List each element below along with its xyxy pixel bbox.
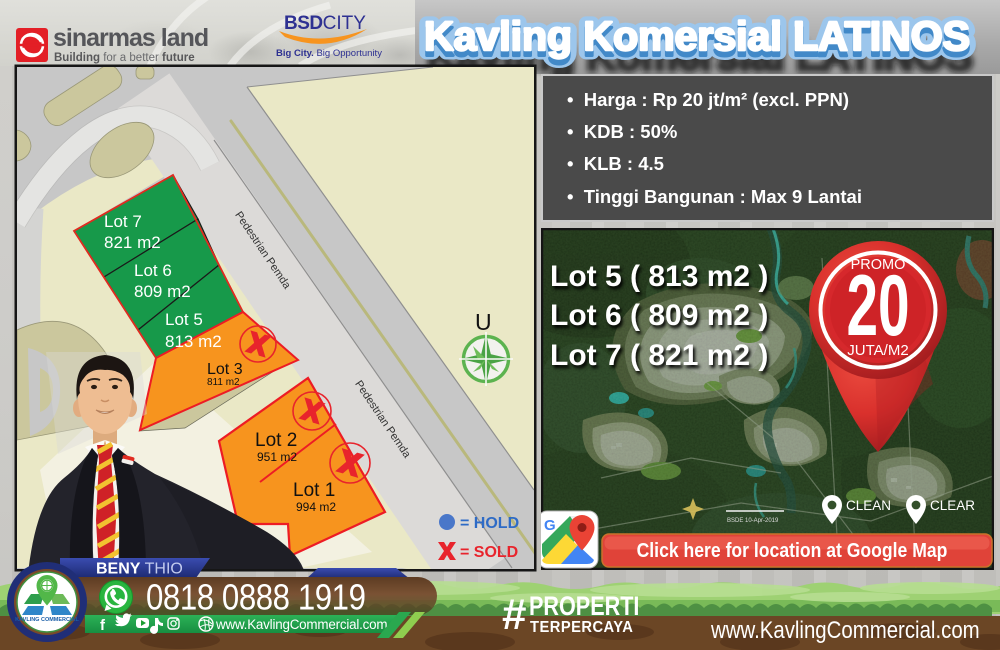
svg-text:Click here for location at Goo: Click here for location at Google Map <box>637 539 948 561</box>
svg-text:www.KavlingCommercial.com: www.KavlingCommercial.com <box>215 617 387 632</box>
svg-text:821 m2: 821 m2 <box>104 233 161 252</box>
svg-text:809 m2: 809 m2 <box>134 282 191 301</box>
svg-text:Lot 7: Lot 7 <box>104 212 142 231</box>
svg-text:KAVLING COMMERCIAL: KAVLING COMMERCIAL <box>15 617 79 623</box>
svg-text:994 m2: 994 m2 <box>296 500 336 514</box>
svg-text:813 m2: 813 m2 <box>165 332 222 351</box>
svg-text:G: G <box>544 517 556 534</box>
svg-text:= HOLD: = HOLD <box>460 515 519 532</box>
svg-text:Lot 5: Lot 5 <box>165 310 203 329</box>
svg-text:Lot 7 ( 821 m2 ): Lot 7 ( 821 m2 ) <box>550 339 768 372</box>
svg-text:BSDE 10-Apr-2019: BSDE 10-Apr-2019 <box>727 518 779 524</box>
svg-text:Lot 6: Lot 6 <box>134 261 172 280</box>
svg-text:0818 0888 1919: 0818 0888 1919 <box>146 577 366 618</box>
svg-text:JUTA/M2: JUTA/M2 <box>847 342 908 359</box>
svg-text:Lot 2: Lot 2 <box>255 430 297 451</box>
svg-text:Lot 5 ( 813 m2 ): Lot 5 ( 813 m2 ) <box>550 260 768 293</box>
svg-text:811 m2: 811 m2 <box>207 377 240 388</box>
svg-text:20: 20 <box>846 258 909 354</box>
svg-text:CLEAN: CLEAN <box>846 498 891 513</box>
svg-text:Lot 6 ( 809 m2 ): Lot 6 ( 809 m2 ) <box>550 299 768 332</box>
svg-text:951 m2: 951 m2 <box>257 450 297 464</box>
svg-text:BENY THIO: BENY THIO <box>96 561 183 578</box>
svg-text:Lot 3: Lot 3 <box>207 361 243 378</box>
svg-text:CLEAR: CLEAR <box>930 498 975 513</box>
svg-text:Lot 1: Lot 1 <box>293 480 335 501</box>
svg-text:U: U <box>475 309 492 335</box>
